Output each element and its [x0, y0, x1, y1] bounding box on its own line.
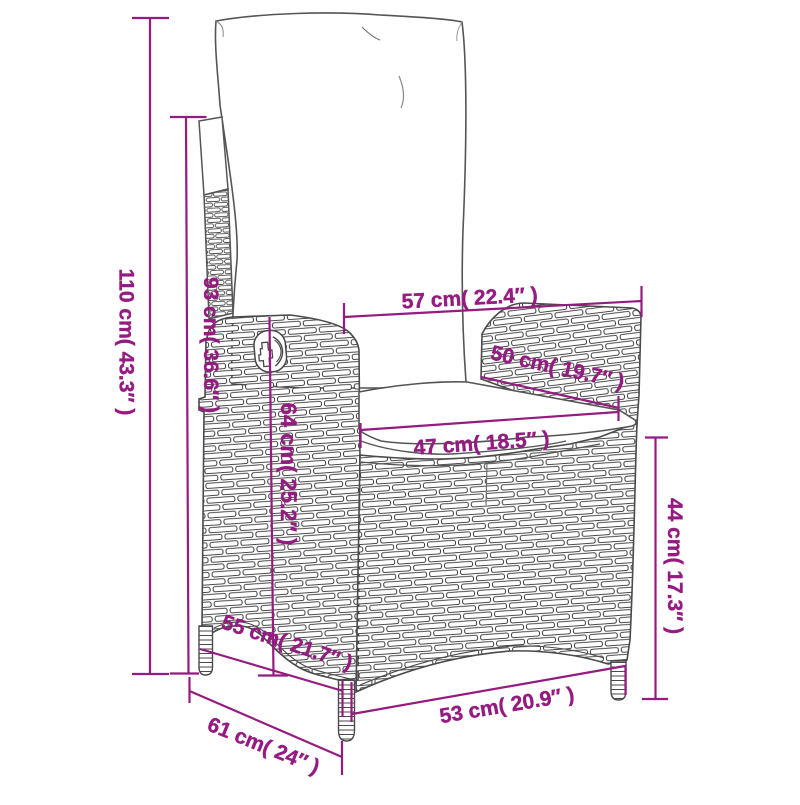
svg-text:44 cm( 17.3″ ): 44 cm( 17.3″ ): [663, 498, 686, 634]
svg-text:53 cm( 20.9″ ): 53 cm( 20.9″ ): [438, 683, 576, 728]
svg-text:93 cm( 36.6″ ): 93 cm( 36.6″ ): [199, 277, 222, 413]
svg-text:110 cm( 43.3″ ): 110 cm( 43.3″ ): [115, 269, 138, 416]
svg-text:64 cm( 25.2″ ): 64 cm( 25.2″ ): [276, 403, 301, 546]
